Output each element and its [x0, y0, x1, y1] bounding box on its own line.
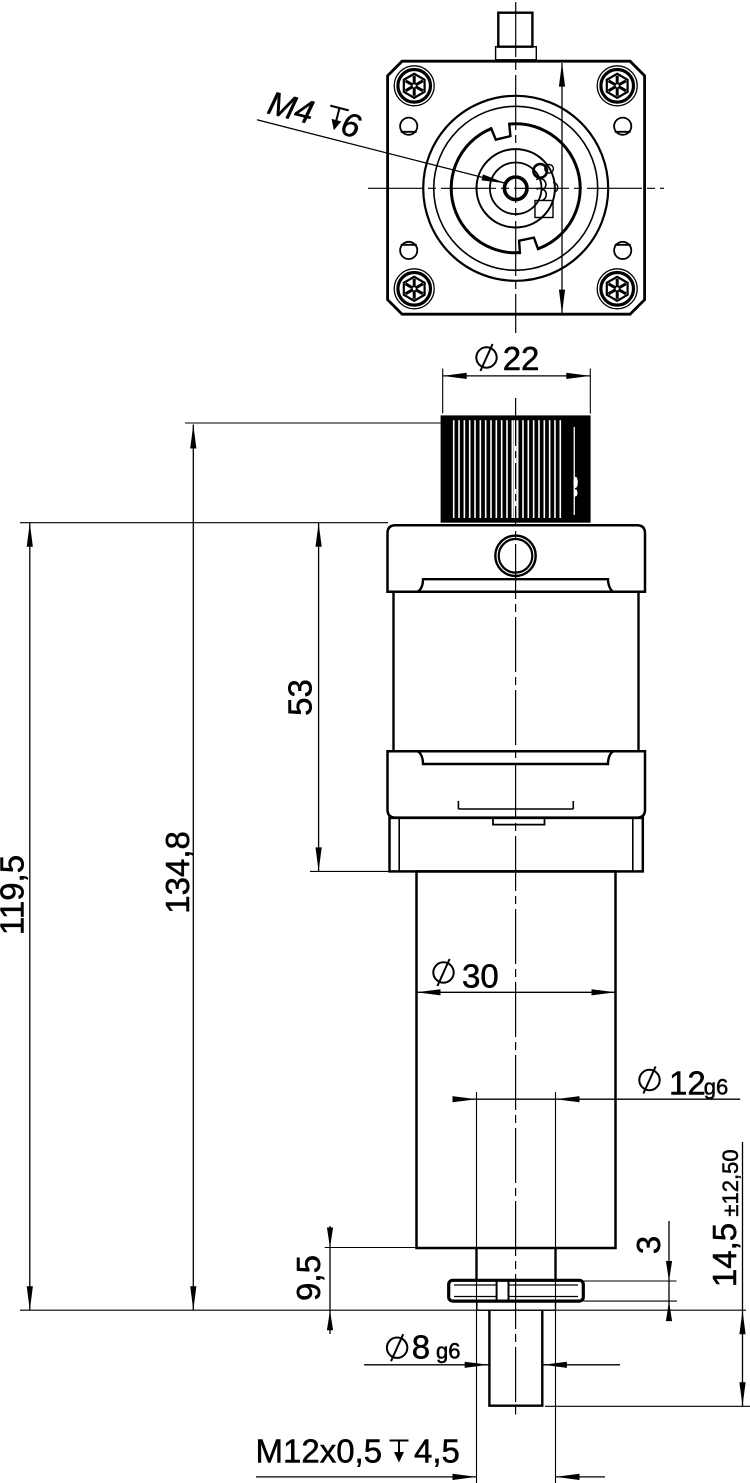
- svg-text:g6: g6: [436, 1339, 460, 1364]
- svg-text:14,5: 14,5: [706, 1223, 743, 1287]
- svg-text:M12x0,5: M12x0,5: [256, 1433, 383, 1470]
- svg-text:134,8: 134,8: [159, 831, 196, 914]
- svg-text:9,5: 9,5: [290, 1255, 327, 1301]
- svg-text:4,5: 4,5: [414, 1433, 460, 1470]
- svg-text:±12,50: ±12,50: [718, 1149, 743, 1216]
- svg-text:8: 8: [412, 1329, 430, 1366]
- svg-text:12: 12: [669, 1065, 706, 1102]
- svg-text:g6: g6: [704, 1075, 728, 1100]
- svg-text:53: 53: [281, 679, 318, 716]
- svg-text:119,5: 119,5: [0, 855, 31, 935]
- svg-text:3: 3: [630, 1236, 667, 1254]
- svg-text:30: 30: [462, 958, 499, 995]
- svg-text:22: 22: [503, 340, 540, 377]
